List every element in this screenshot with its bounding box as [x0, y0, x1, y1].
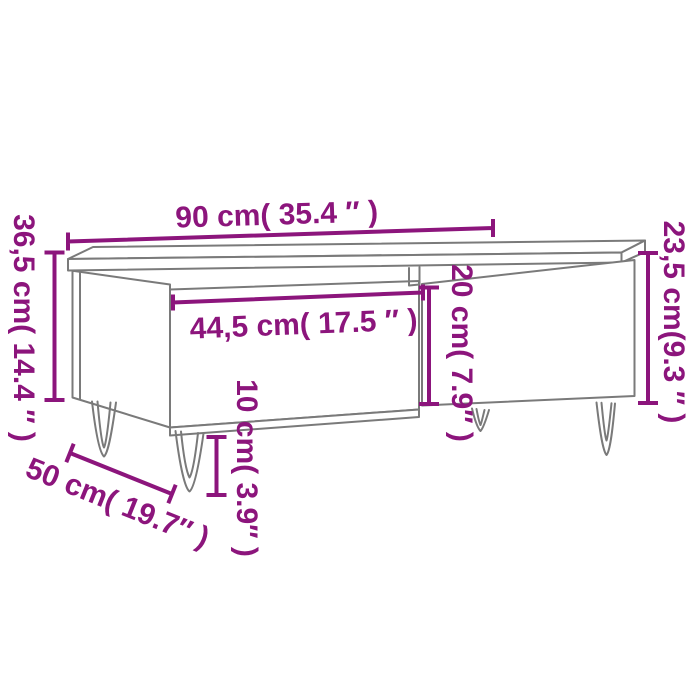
dimension-body-height-label: 23,5 cm(9.3 ″ )	[657, 221, 690, 424]
leg-right-front	[597, 403, 616, 456]
dimension-total-height-label: 36,5 cm( 14.4 ″ )	[7, 214, 40, 442]
leg-left-front	[176, 431, 204, 492]
table-drawing	[68, 241, 645, 492]
dimension-front-panel-height-label: 20 cm( 7.9″ )	[445, 264, 478, 442]
dimension-leg-height-label: 10 cm( 3.9″ )	[230, 379, 263, 557]
dimension-line-leg-height	[207, 437, 227, 495]
dimension-front-panel-height: 20 cm( 7.9″ )	[419, 264, 478, 442]
dimension-depth-label: 50 cm( 19.7″ )	[21, 452, 214, 555]
dimension-total-height: 36,5 cm( 14.4 ″ )	[7, 214, 65, 442]
dimension-top-width-label: 90 cm( 35.4 ″ )	[175, 195, 379, 234]
dimension-diagram: 90 cm( 35.4 ″ ) 36,5 cm( 14.4 ″ ) 23,5 c…	[0, 0, 700, 700]
left-side-panel	[73, 271, 171, 428]
dimension-body-height: 23,5 cm(9.3 ″ )	[638, 221, 690, 424]
dimension-line-body-height	[638, 253, 658, 403]
product-dimension-image: 90 cm( 35.4 ″ ) 36,5 cm( 14.4 ″ ) 23,5 c…	[0, 0, 700, 700]
dimension-line-total-height	[45, 253, 65, 401]
